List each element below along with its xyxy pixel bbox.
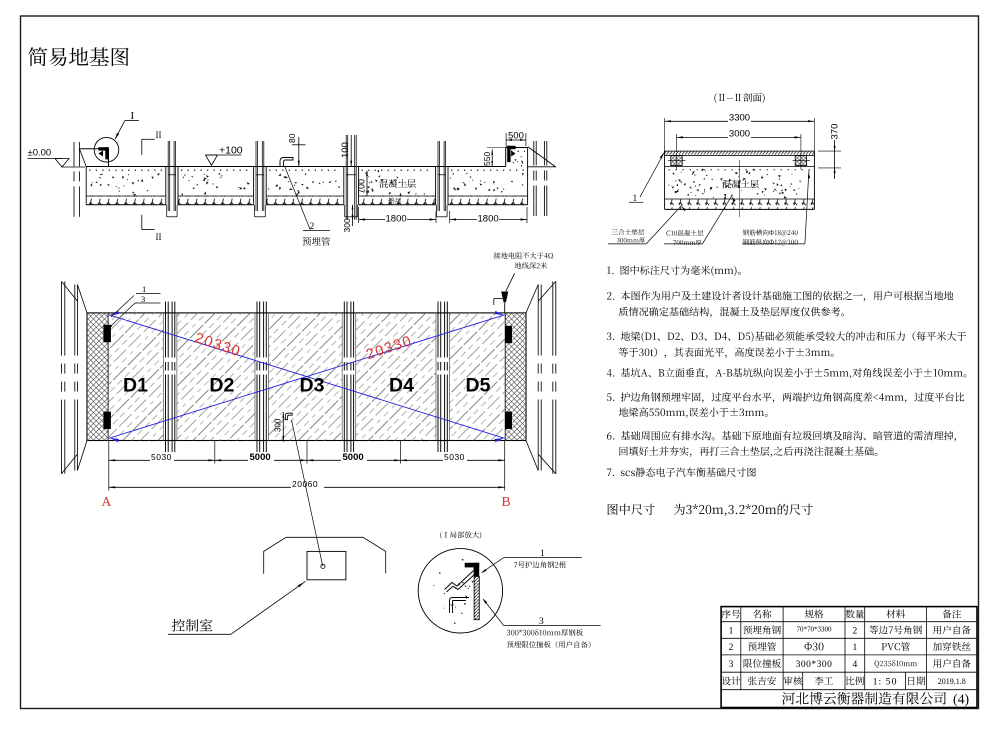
svg-text:1800: 1800 <box>386 214 407 225</box>
svg-text:1: 1 <box>142 284 146 294</box>
svg-text:±0.00: ±0.00 <box>28 148 52 159</box>
svg-text:D3: D3 <box>300 375 325 397</box>
svg-text:II: II <box>156 232 162 242</box>
svg-text:3: 3 <box>539 617 544 627</box>
svg-text:500: 500 <box>508 131 524 142</box>
svg-text:D5: D5 <box>466 375 491 397</box>
svg-text:4: 4 <box>852 660 857 670</box>
svg-text:3: 3 <box>141 294 145 304</box>
svg-text:D2: D2 <box>209 375 234 397</box>
svg-text:1800: 1800 <box>478 214 499 225</box>
svg-text:3000: 3000 <box>729 129 750 140</box>
svg-text:2: 2 <box>310 222 315 232</box>
svg-text:370: 370 <box>830 124 841 140</box>
svg-text:2: 2 <box>852 626 857 636</box>
svg-text:II: II <box>156 130 162 140</box>
svg-text:300*300: 300*300 <box>796 660 833 670</box>
svg-text:70*70*3300: 70*70*3300 <box>797 626 833 634</box>
svg-text:300: 300 <box>274 418 283 432</box>
svg-text:100: 100 <box>340 142 351 158</box>
svg-text:I: I <box>131 110 135 122</box>
svg-text:A: A <box>102 494 112 509</box>
svg-text:2019.1.8: 2019.1.8 <box>938 677 966 686</box>
svg-text:5030: 5030 <box>151 452 172 462</box>
svg-text:1: 1 <box>729 626 734 636</box>
svg-text:1: 1 <box>540 549 545 559</box>
svg-text:(4): (4) <box>953 692 969 708</box>
svg-text:1: 1 <box>633 194 638 204</box>
svg-text:2: 2 <box>729 643 734 653</box>
svg-text:5030: 5030 <box>444 452 465 462</box>
svg-text:300: 300 <box>342 218 352 232</box>
svg-text:1: 50: 1: 50 <box>873 676 898 687</box>
svg-text:80: 80 <box>287 133 297 143</box>
svg-text:700: 700 <box>357 179 367 194</box>
svg-text:D1: D1 <box>123 375 148 397</box>
svg-text:D4: D4 <box>389 375 414 397</box>
svg-text:5000: 5000 <box>343 452 364 463</box>
svg-text:550: 550 <box>482 152 492 166</box>
svg-text:3: 3 <box>729 660 734 670</box>
svg-text:3300: 3300 <box>729 112 750 123</box>
svg-text:B: B <box>502 494 511 509</box>
svg-text:5000: 5000 <box>250 452 271 463</box>
svg-text:1: 1 <box>852 643 857 653</box>
